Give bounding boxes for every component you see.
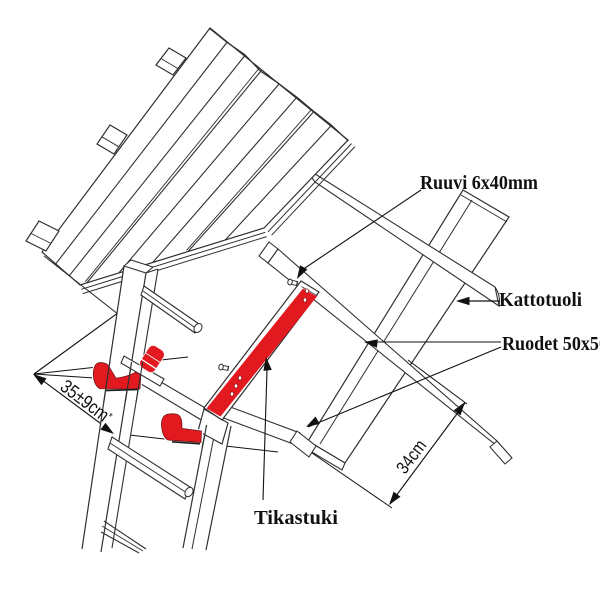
svg-text:Tikastuki: Tikastuki (254, 507, 338, 529)
svg-text:Ruodet 50x50: Ruodet 50x50 (502, 333, 600, 355)
svg-text:Kattotuoli: Kattotuoli (499, 289, 582, 311)
svg-text:Ruuvi 6x40mm: Ruuvi 6x40mm (420, 172, 538, 194)
